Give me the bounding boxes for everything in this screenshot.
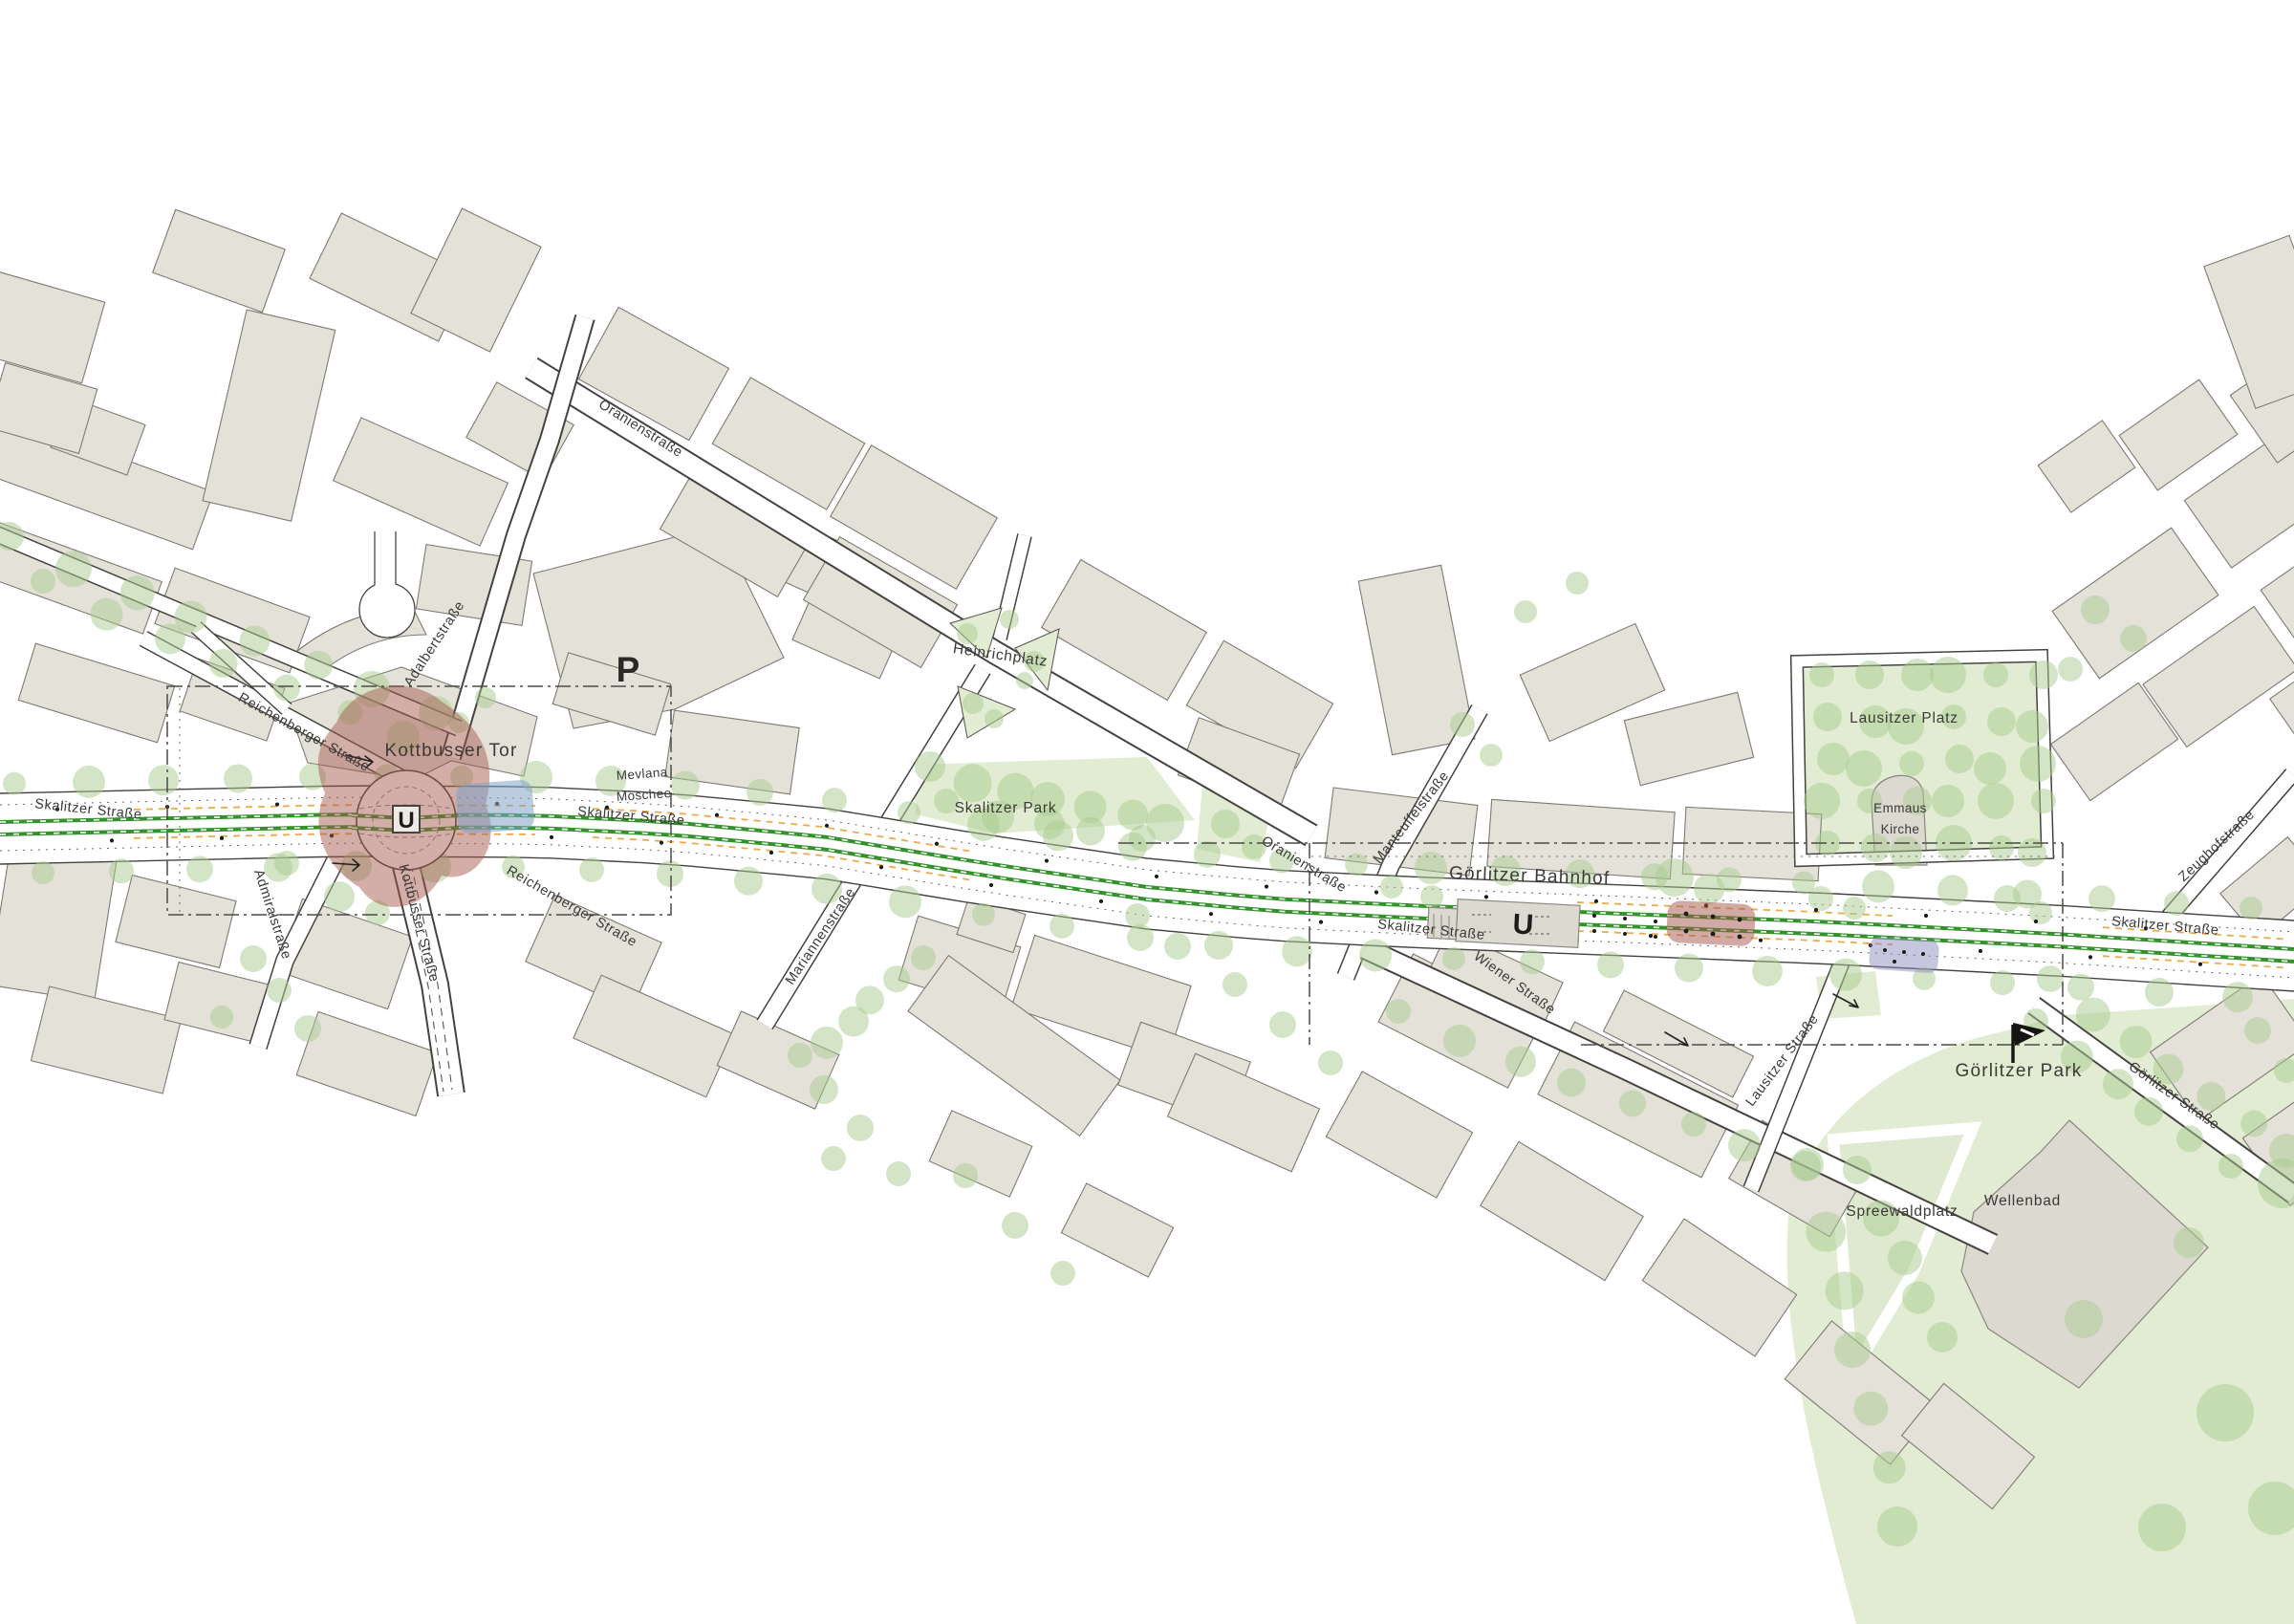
kotti-highlight-blue: [455, 779, 534, 834]
place-label-mevlana-line1: Mevlana: [616, 765, 668, 783]
goerlitzer-highlight-purple: [1869, 937, 1939, 974]
place-label-lausitzer-platz: Lausitzer Platz: [1850, 710, 1959, 726]
place-label-goerlitzer-park: Görlitzer Park: [1956, 1061, 2083, 1081]
cul-de-sac-loop: [359, 531, 415, 638]
place-label-skalitzer-park: Skalitzer Park: [955, 800, 1057, 816]
parking-icon: P: [617, 650, 640, 689]
site-plan-map: Kottbusser Tor U Görlitzer Bahnhof U P S…: [0, 0, 2294, 1624]
goerlitzer-highlight-red: [1666, 900, 1756, 947]
station-label-kottbusser-tor: Kottbusser Tor: [385, 741, 518, 761]
place-label-spreewaldplatz: Spreewaldplatz: [1846, 1203, 1958, 1220]
u-bahn-icon: U: [1512, 908, 1534, 941]
place-label-emmaus-line1: Emmaus: [1873, 801, 1927, 815]
u-bahn-icon: U: [398, 808, 414, 834]
place-label-wellenbad: Wellenbad: [1984, 1193, 2061, 1209]
place-label-emmaus-line2: Kirche: [1881, 822, 1920, 836]
